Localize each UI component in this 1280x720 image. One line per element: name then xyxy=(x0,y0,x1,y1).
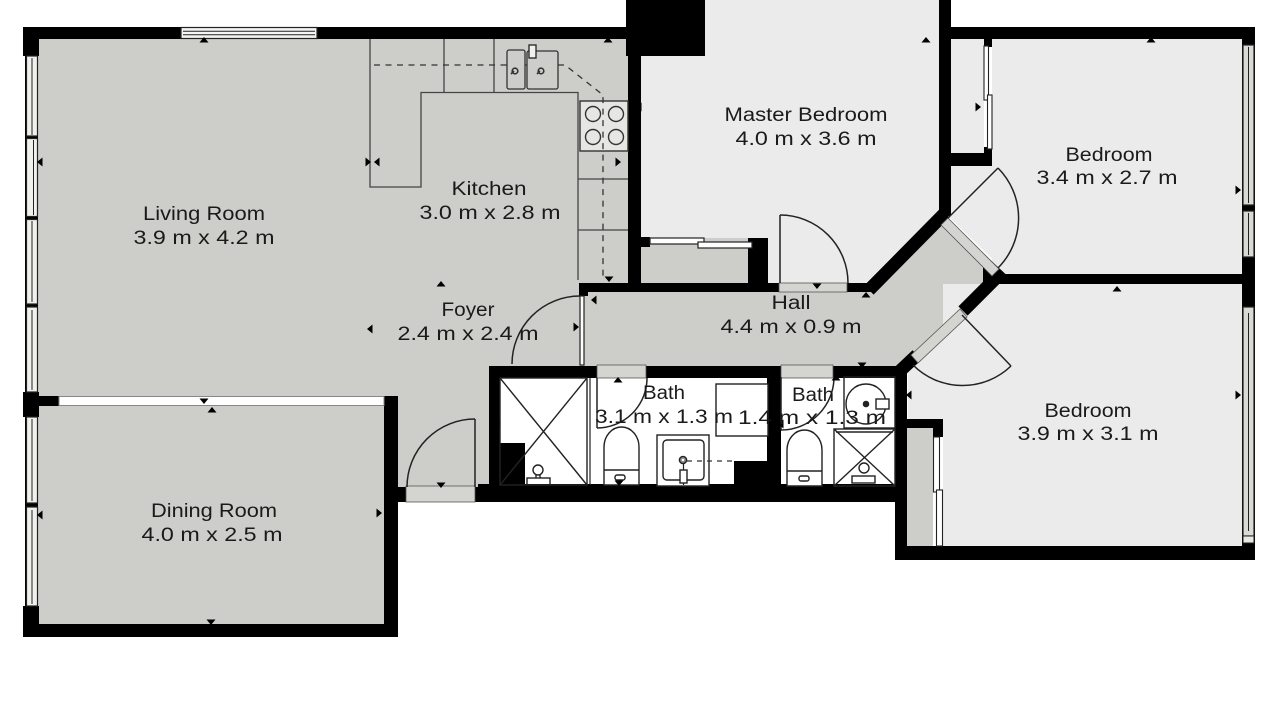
svg-text:Hall: Hall xyxy=(772,293,811,314)
svg-text:Foyer: Foyer xyxy=(442,300,496,321)
svg-text:4.4 m x 0.9 m: 4.4 m x 0.9 m xyxy=(721,317,862,338)
svg-text:1.4 m x 1.3 m: 1.4 m x 1.3 m xyxy=(738,408,886,429)
svg-text:4.0 m x 2.5 m: 4.0 m x 2.5 m xyxy=(142,525,283,546)
svg-text:Master Bedroom: Master Bedroom xyxy=(725,105,888,126)
svg-text:Bath: Bath xyxy=(643,383,685,404)
svg-text:4.0 m x 3.6 m: 4.0 m x 3.6 m xyxy=(736,129,877,150)
svg-text:Bedroom: Bedroom xyxy=(1066,145,1153,166)
svg-text:3.0 m x 2.8 m: 3.0 m x 2.8 m xyxy=(420,203,561,224)
svg-text:Kitchen: Kitchen xyxy=(452,179,527,200)
svg-text:Dining Room: Dining Room xyxy=(151,501,277,522)
svg-text:3.4 m x 2.7 m: 3.4 m x 2.7 m xyxy=(1037,168,1178,189)
svg-text:Bedroom: Bedroom xyxy=(1045,401,1132,422)
svg-text:Living Room: Living Room xyxy=(143,204,265,225)
svg-text:2.4 m x 2.4 m: 2.4 m x 2.4 m xyxy=(398,324,539,345)
svg-text:3.9 m x 3.1 m: 3.9 m x 3.1 m xyxy=(1018,424,1159,445)
svg-text:3.9 m x 4.2 m: 3.9 m x 4.2 m xyxy=(134,228,275,249)
svg-text:Bath: Bath xyxy=(792,385,834,406)
svg-text:3.1 m x 1.3 m: 3.1 m x 1.3 m xyxy=(595,407,733,428)
